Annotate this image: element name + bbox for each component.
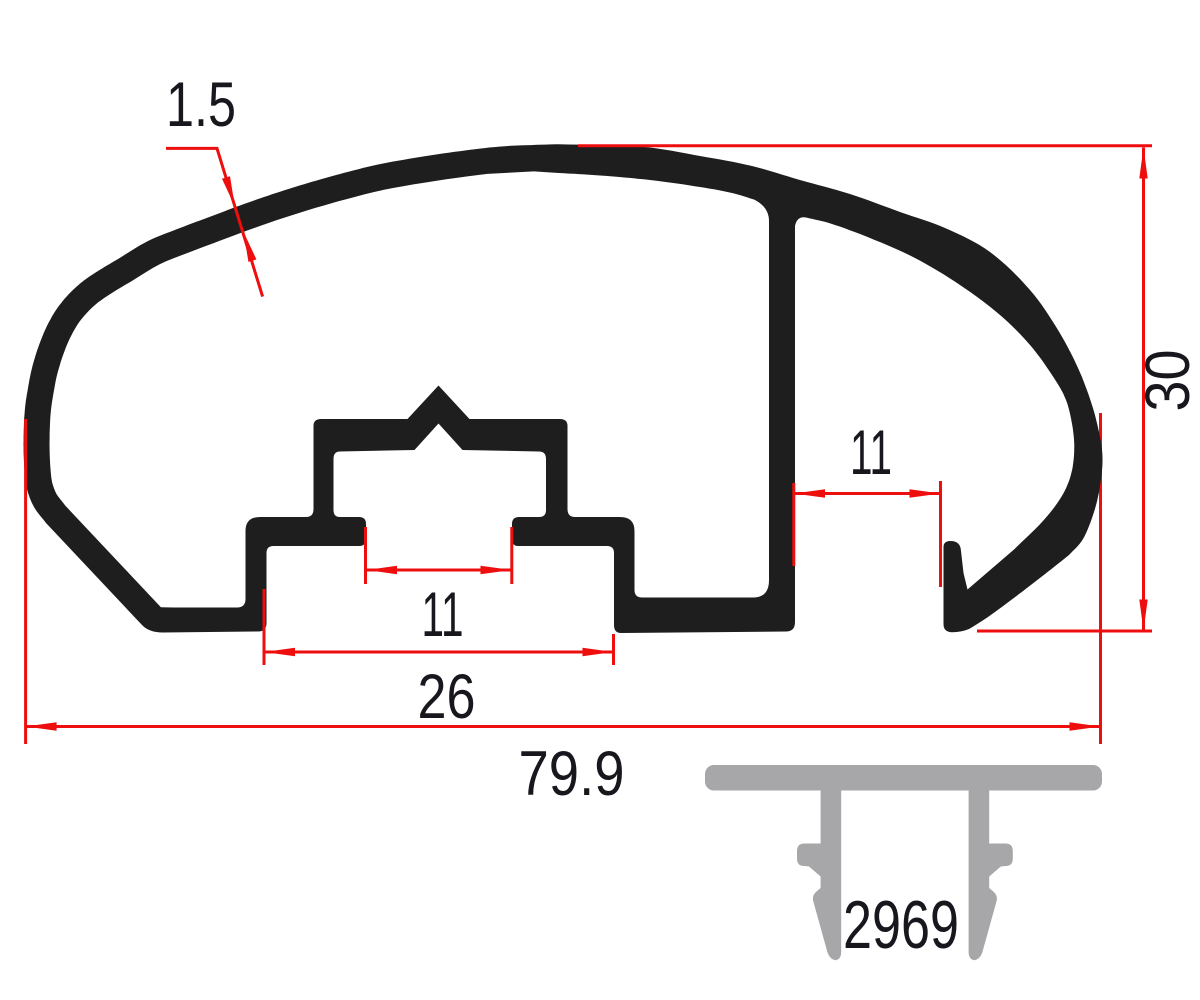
svg-text:79.9: 79.9 [519, 739, 625, 809]
svg-text:26: 26 [418, 662, 476, 732]
svg-text:11: 11 [422, 580, 464, 650]
svg-text:2969: 2969 [843, 887, 959, 963]
svg-text:30: 30 [1133, 350, 1200, 412]
svg-text:1.5: 1.5 [166, 70, 236, 140]
svg-text:11: 11 [850, 418, 892, 488]
